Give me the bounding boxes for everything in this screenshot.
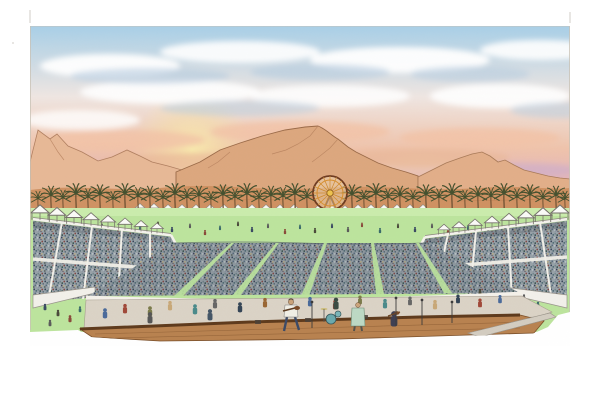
paper-grain — [30, 26, 570, 346]
festival-illustration — [0, 0, 600, 400]
